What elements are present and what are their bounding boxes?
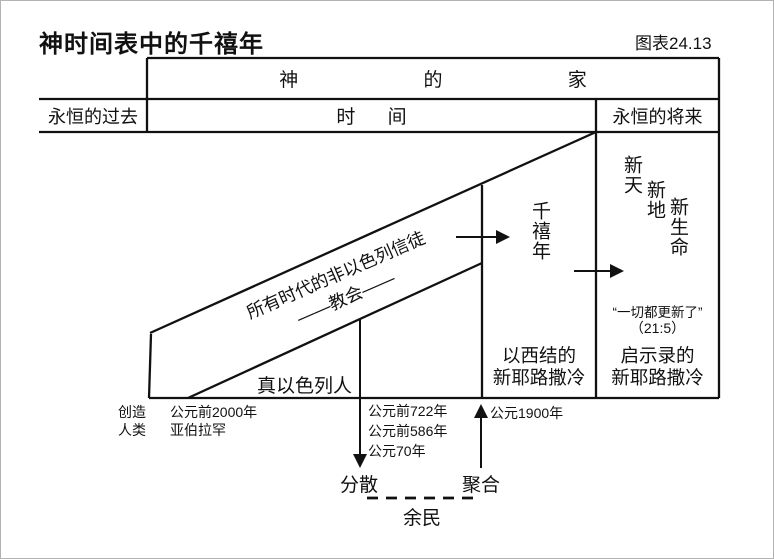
- abraham-year: 公元前2000年: [170, 404, 257, 422]
- eternal-future-cell: 永恒的将来: [596, 99, 719, 132]
- millennium-timeline-diagram: 神时间表中的千禧年 图表24.13 神 的 家 永恒的过去 时 间 永恒的将来 …: [0, 0, 774, 559]
- time-cell: 时 间: [147, 99, 596, 132]
- revelation-jerusalem-line2: 新耶路撒冷: [596, 367, 719, 389]
- gather-label: 聚合: [462, 470, 500, 497]
- up-arrowhead: [474, 404, 488, 418]
- creation-label: 创造 人类: [118, 404, 146, 439]
- page-title: 神时间表中的千禧年: [39, 24, 264, 59]
- new-life-label: 新生命: [666, 197, 688, 257]
- quote-reference: （21:5）: [596, 318, 719, 338]
- ezekiel-jerusalem-label: 以西结的 新耶路撒冷: [482, 345, 596, 389]
- gods-house-cell: 神 的 家: [147, 58, 719, 99]
- right-arrowhead-2: [610, 264, 624, 278]
- right-arrowhead-1: [496, 230, 510, 244]
- ezekiel-jerusalem-line1: 以西结的: [482, 345, 596, 367]
- year-70-ad: 公元70年: [368, 441, 447, 461]
- abraham-label: 公元前2000年 亚伯拉罕: [170, 404, 257, 439]
- abraham-name: 亚伯拉罕: [170, 422, 257, 440]
- scatter-label: 分散: [340, 470, 378, 497]
- year-1900-label: 公元1900年: [490, 405, 563, 423]
- down-arrowhead: [353, 454, 367, 468]
- figure-number-label: 图表24.13: [635, 29, 712, 54]
- ezekiel-jerusalem-line2: 新耶路撒冷: [482, 367, 596, 389]
- millennium-label: 千禧年: [528, 201, 550, 261]
- remnant-label: 余民: [403, 503, 441, 530]
- year-586-bc: 公元前586年: [368, 421, 447, 441]
- year-722-bc: 公元前722年: [368, 401, 447, 421]
- true-israel-label: 真以色列人: [257, 371, 352, 398]
- revelation-jerusalem-line1: 启示录的: [596, 345, 719, 367]
- exile-years-label: 公元前722年 公元前586年 公元70年: [368, 401, 447, 461]
- eternal-past-cell: 永恒的过去: [39, 99, 147, 132]
- new-earth-label: 新地: [643, 180, 665, 220]
- new-heaven-label: 新天: [620, 155, 642, 195]
- band-left-edge-line: [149, 334, 151, 398]
- creation-line1: 创造: [118, 404, 146, 422]
- creation-line2: 人类: [118, 422, 146, 440]
- revelation-jerusalem-label: 启示录的 新耶路撒冷: [596, 345, 719, 389]
